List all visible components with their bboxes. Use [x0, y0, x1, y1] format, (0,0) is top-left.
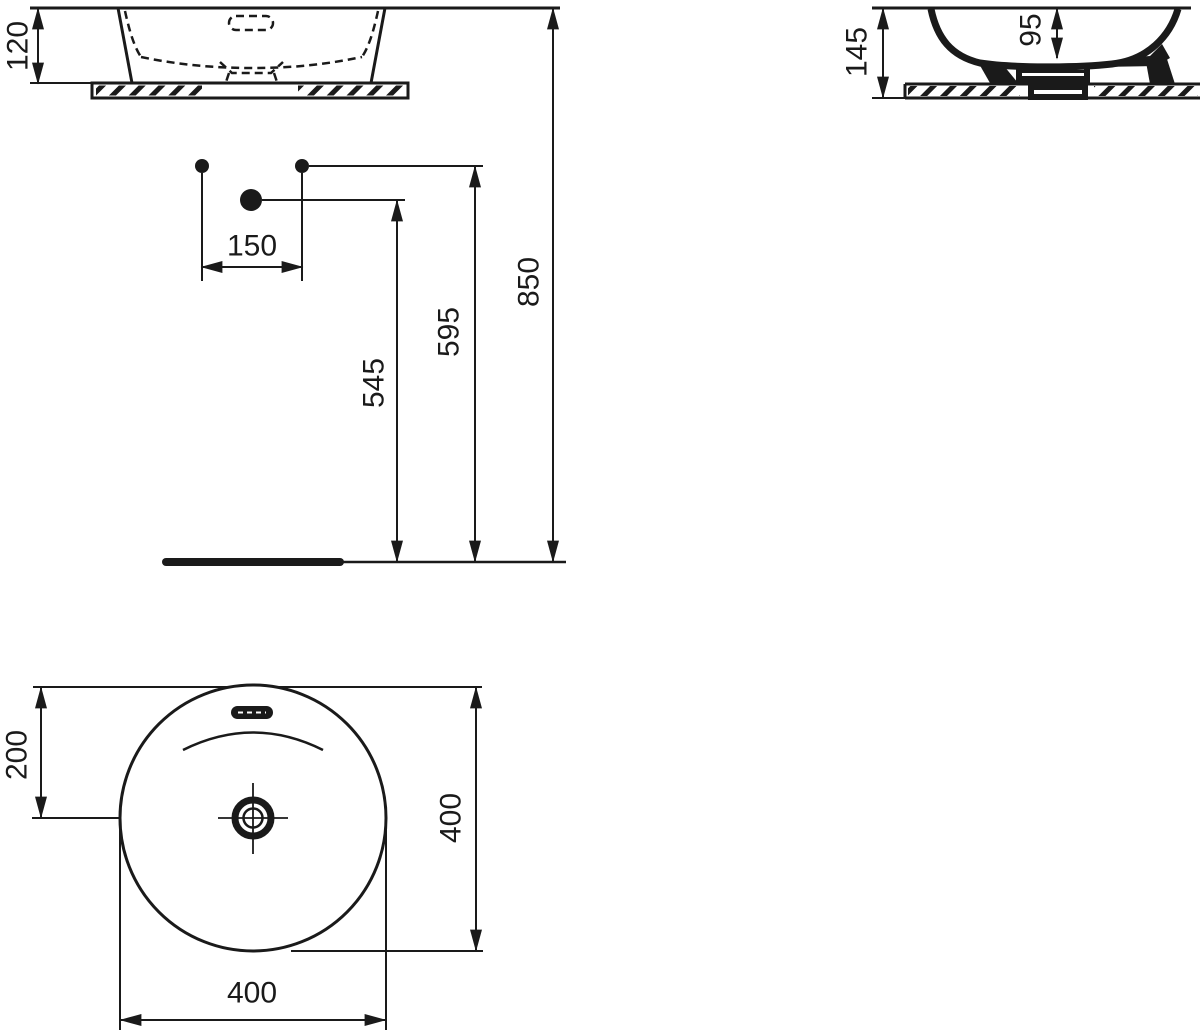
plan-view: 200 400 400 — [1, 685, 484, 1030]
dim-label-95: 95 — [1015, 13, 1048, 46]
slab-hatch-right — [1094, 86, 1198, 96]
dim-label-400-horizontal: 400 — [227, 977, 277, 1010]
washbasin-technical-drawing: 120 145 95 150 545 5 — [0, 0, 1200, 1030]
dim-label-595: 595 — [433, 307, 466, 357]
dim-label-150: 150 — [227, 230, 277, 263]
bowl-section-profile — [931, 9, 1178, 67]
waste-flange-slit — [1034, 90, 1082, 94]
slab-hatch-right — [298, 86, 404, 96]
front-elevation-view: 120 — [2, 8, 561, 98]
dim-label-850: 850 — [513, 257, 546, 307]
dim-label-200: 200 — [1, 730, 34, 780]
drawing-canvas: 120 145 95 150 545 5 — [0, 0, 1200, 1030]
waste-position-mark — [240, 189, 262, 211]
tap-hole-left-mark — [195, 159, 209, 173]
waste-slit — [1022, 73, 1084, 76]
tap-hole-right-mark — [295, 159, 309, 173]
dim-label-145: 145 — [841, 27, 874, 77]
slab-hatch-left — [908, 86, 1020, 96]
dim-label-400-vertical: 400 — [435, 793, 468, 843]
basin-front-outline — [118, 8, 385, 83]
dim-label-120: 120 — [2, 21, 35, 71]
slab-hatch-left — [96, 86, 202, 96]
side-section-view: 145 95 — [841, 8, 1200, 100]
dim-label-545: 545 — [358, 358, 391, 408]
